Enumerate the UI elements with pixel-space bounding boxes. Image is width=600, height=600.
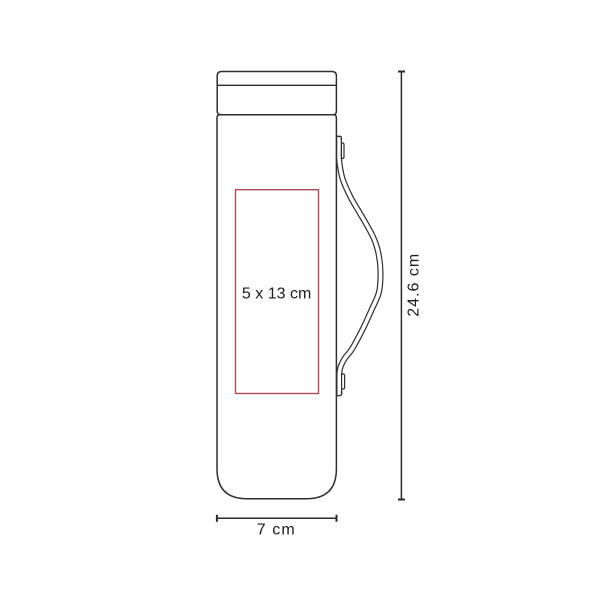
svg-text:24.6 cm: 24.6 cm bbox=[406, 253, 423, 317]
svg-text:5 x 13 cm: 5 x 13 cm bbox=[242, 285, 311, 302]
svg-text:7 cm: 7 cm bbox=[257, 522, 296, 539]
